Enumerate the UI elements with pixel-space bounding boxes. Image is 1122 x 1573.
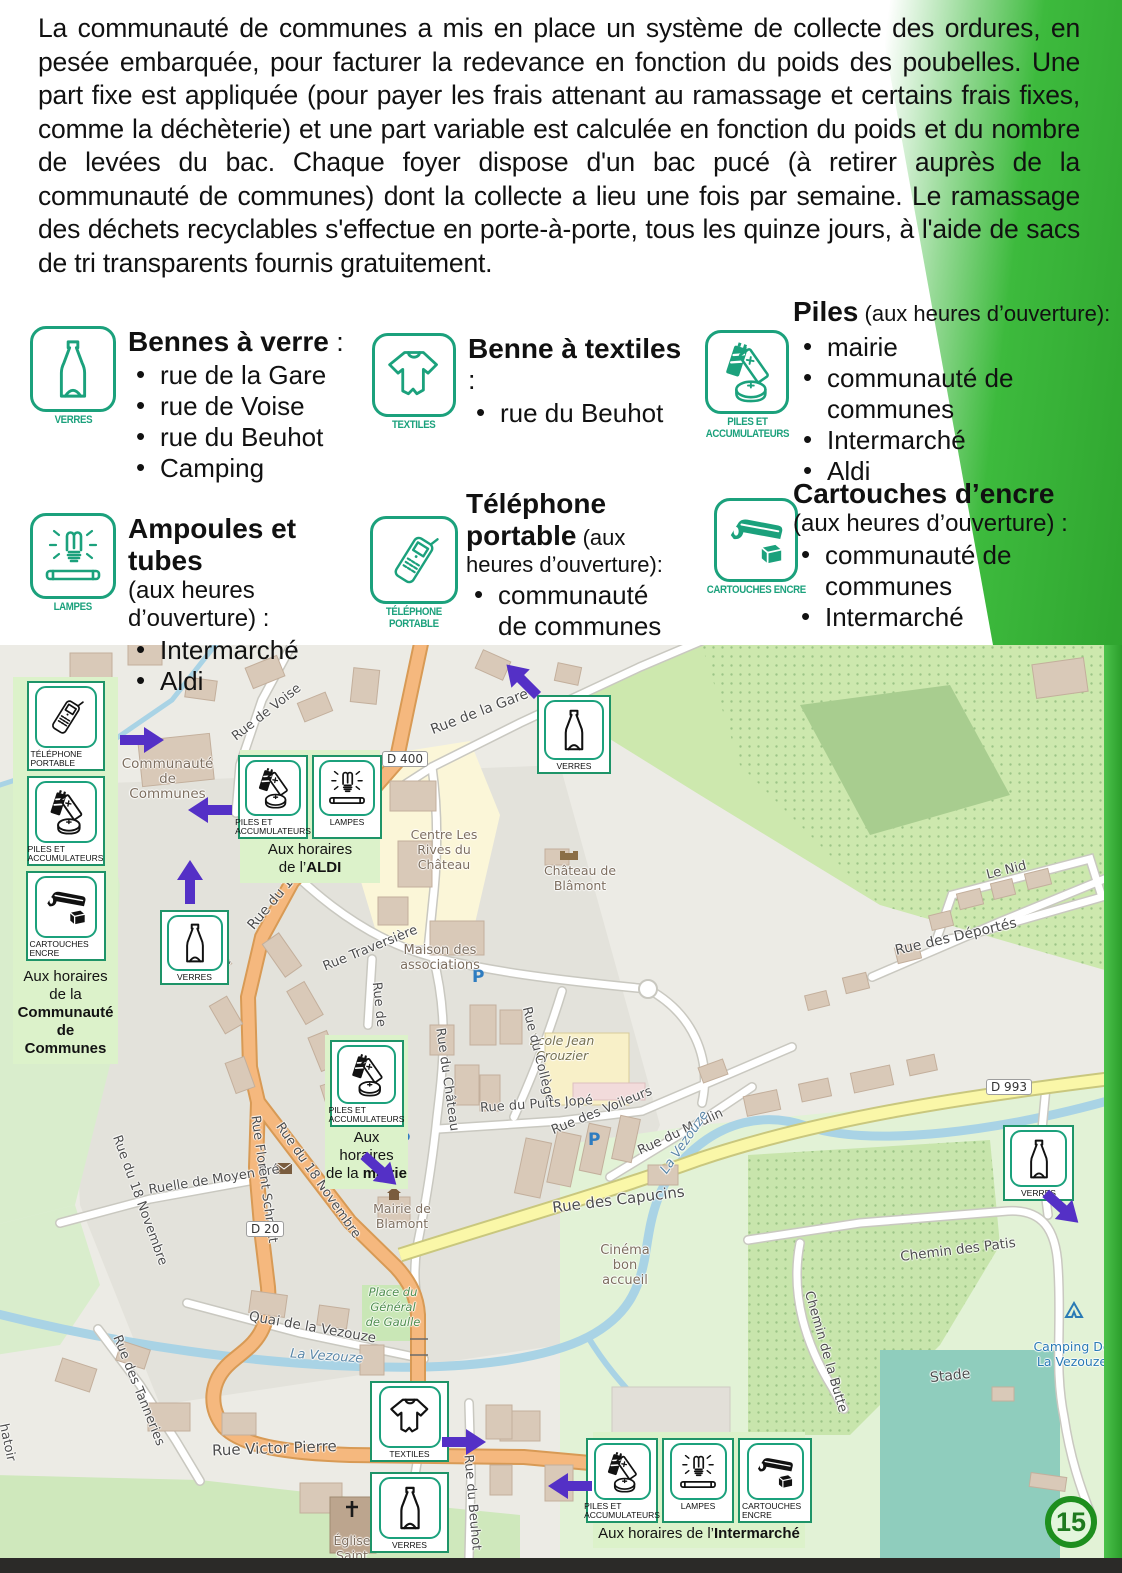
callout-intermarche: PILES ET ACCUMULATEURS LAMPES CARTOUCHES… xyxy=(593,1432,805,1548)
textiles-locations-list: rue du Beuhot xyxy=(468,398,693,429)
section-piles-title: Piles (aux heures d’ouverture): xyxy=(793,296,1113,328)
place-label-maison-des-associations: Maison des associations xyxy=(396,943,484,973)
telephone-icon: TÉLÉPHONE PORTABLE xyxy=(370,516,458,630)
document-page: La communauté de communes a mis en place… xyxy=(0,0,1122,1573)
arrow-icon-verres-voise xyxy=(177,860,203,904)
section-suffix: (aux heures d’ouverture) : xyxy=(128,577,378,633)
list-item: communauté de communes xyxy=(466,580,671,642)
arrow-icon-aldi xyxy=(188,797,232,823)
piles-icon: PILES ET ACCUMULATEURS xyxy=(700,330,795,440)
list-item: Intermarché xyxy=(128,635,378,666)
callout-caption: Aux horaires de la Communauté de Commune… xyxy=(13,968,118,1058)
section-ampoules: LAMPES Ampoules et tubes (aux heures d’o… xyxy=(30,513,378,697)
cul-de-sac xyxy=(639,980,657,998)
list-item: rue du Beuhot xyxy=(128,422,378,453)
place-label-centre-les-rives: Centre Les Rives du Château xyxy=(408,827,480,872)
list-item: rue de la Gare xyxy=(128,360,378,391)
ampoules-locations-list: IntermarchéAldi xyxy=(128,635,378,697)
town-map: P P P Rue de Voise ise Rue de la Gare D … xyxy=(0,645,1122,1558)
road-ref-d400: D 400 xyxy=(382,751,428,767)
list-item: Intermarché xyxy=(793,602,1113,633)
map-icon-piles-mairie: PILES ET ACCUMULATEURS xyxy=(330,1040,404,1127)
map-icon-cartouches-cdc: CARTOUCHES ENCRE xyxy=(26,871,106,961)
intro-paragraph: La communauté de communes a mis en place… xyxy=(38,12,1080,280)
list-item: communauté de communes xyxy=(795,363,1105,425)
section-title: Benne à textiles : xyxy=(468,333,693,396)
place-label-cinema-bon-accueil: Cinéma bon accueil xyxy=(590,1243,660,1288)
map-icon-verres-rue-de-la-gare: VERRES xyxy=(537,695,611,774)
green-edge-strip xyxy=(1104,645,1122,1558)
place-label-place-du-general-de-gaulle: Place du Général de Gaulle xyxy=(362,1285,424,1330)
section-title: Ampoules et tubes xyxy=(128,513,378,577)
verres-icon: VERRES xyxy=(30,326,116,484)
map-icon-piles-intermarche: PILES ET ACCUMULATEURS xyxy=(586,1438,658,1523)
arrow-icon-cdc xyxy=(120,727,164,753)
lampes-icon-label: LAMPES xyxy=(54,602,92,614)
verre-locations-list: rue de la Garerue de Voiserue du BeuhotC… xyxy=(128,360,378,484)
telephone-icon-label: TÉLÉPHONE PORTABLE xyxy=(386,607,442,630)
map-icon-verres-rue-de-voise: VERRES xyxy=(160,910,229,985)
map-icon-piles-cdc: PILES ET ACCUMULATEURS xyxy=(27,776,105,866)
section-cartouches: Cartouches d’encre (aux heures d’ouvertu… xyxy=(793,478,1113,633)
list-item: communauté de communes xyxy=(793,540,1113,602)
place-label-chateau-de-blamont: Château de Blâmont xyxy=(540,863,620,893)
map-icon-textiles-rue-du-beuhot: TEXTILES xyxy=(370,1381,449,1462)
list-item: Intermarché xyxy=(795,425,1105,456)
section-piles-list: mairiecommunauté de communesIntermarchéA… xyxy=(795,330,1105,487)
callout-caption: Aux horaires de l’ALDI xyxy=(268,841,352,877)
page-bottom-edge xyxy=(0,1558,1122,1573)
callout-aldi: PILES ET ACCUMULATEURS LAMPES Aux horair… xyxy=(240,750,380,883)
textiles-icon-label: TEXTILES xyxy=(392,420,435,432)
textiles-icon: TEXTILES xyxy=(372,333,456,432)
map-icon-verres-eglise: VERRES xyxy=(370,1472,449,1553)
list-item: rue de Voise xyxy=(128,391,378,422)
callout-communaute-de-communes: TÉLÉPHONE PORTABLE PILES ET ACCUMULATEUR… xyxy=(13,677,118,1064)
map-icon-cartouches-intermarche: CARTOUCHES ENCRE xyxy=(738,1438,812,1523)
section-benne-a-textiles: TEXTILES Benne à textiles : rue du Beuho… xyxy=(372,333,693,432)
lampes-icon: LAMPES xyxy=(30,513,116,697)
list-item: rue du Beuhot xyxy=(468,398,693,429)
road-ref-d993: D 993 xyxy=(986,1079,1032,1095)
list-item: Camping xyxy=(128,453,378,484)
place-label-mairie-de-blamont: Mairie de Blamont xyxy=(362,1201,442,1231)
list-item: mairie xyxy=(795,332,1105,363)
page-number: 15 xyxy=(1045,1496,1097,1548)
cartouches-icon-label: CARTOUCHES ENCRE xyxy=(707,585,806,597)
arrow-icon-intermarche xyxy=(548,1473,592,1499)
telephone-locations-list: communauté de communes xyxy=(466,580,671,642)
map-icon-lampes-intermarche: LAMPES xyxy=(662,1438,734,1523)
map-icon-lampes-aldi: LAMPES xyxy=(312,755,382,839)
list-item: Aldi xyxy=(128,666,378,697)
cartouches-locations-list: communauté de communesIntermarché xyxy=(793,540,1113,633)
map-icon-verres-chemin-des-patis: VERRES xyxy=(1003,1125,1074,1201)
section-title: Bennes à verre : xyxy=(128,326,378,358)
piles-icon-label: PILES ET ACCUMULATEURS xyxy=(706,417,789,440)
map-icon-piles-aldi: PILES ET ACCUMULATEURS xyxy=(238,755,308,839)
road-ref-d20: D 20 xyxy=(246,1221,284,1237)
section-telephone: Téléphone portable (aux heures d’ouvertu… xyxy=(466,488,671,642)
verres-icon-label: VERRES xyxy=(54,415,92,427)
place-label-communaute-de-communes: Communauté de Communes xyxy=(120,757,215,802)
section-bennes-a-verre: VERRES Bennes à verre : rue de la Gareru… xyxy=(30,326,378,484)
arrow-icon-textiles xyxy=(442,1429,486,1455)
callout-caption: Aux horaires de l’Intermarché xyxy=(598,1525,800,1543)
parking-icon: P xyxy=(588,1130,600,1150)
